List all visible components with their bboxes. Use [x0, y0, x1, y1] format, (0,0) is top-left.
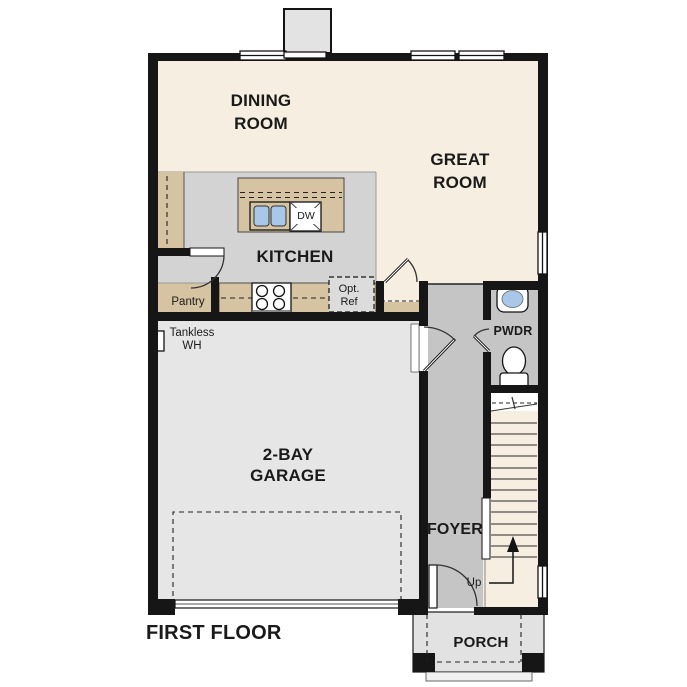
dw-label: DW	[293, 210, 319, 222]
up-label: Up	[460, 577, 488, 590]
floor-plan: DINING ROOM GREAT ROOM KITCHEN 2-BAY GAR…	[0, 0, 687, 687]
opt-ref-label: Opt. Ref	[333, 283, 365, 309]
porch-label: PORCH	[441, 634, 521, 651]
powder-label: PWDR	[488, 324, 538, 338]
foyer-hall-floor	[428, 284, 483, 608]
closet-shelf	[380, 302, 422, 313]
stair-floor	[483, 392, 538, 608]
porch-step	[426, 672, 532, 681]
garage-entry-step	[411, 324, 419, 372]
foyer-label: FOYER	[415, 521, 495, 539]
pantry-label: Pantry	[157, 296, 219, 309]
fireplace-window	[284, 52, 326, 58]
tankless-wh-label: Tankless WH	[163, 327, 221, 352]
kitchen-label: KITCHEN	[245, 247, 345, 267]
great-room-label: GREAT ROOM	[410, 148, 510, 194]
pantry-door	[190, 248, 224, 256]
sink-basin-left	[254, 206, 269, 226]
sink-basin-right	[271, 206, 286, 226]
floorplan-drawing	[0, 0, 687, 687]
toilet-bowl	[503, 347, 526, 375]
front-door	[429, 565, 437, 608]
first-floor-title: FIRST FLOOR	[146, 622, 282, 645]
dining-room-label: DINING ROOM	[211, 89, 311, 135]
garage-label: 2-BAY GARAGE	[238, 444, 338, 486]
fireplace-bumpout	[284, 9, 331, 53]
range-stove	[252, 283, 291, 314]
tall-cabinets	[156, 172, 184, 252]
